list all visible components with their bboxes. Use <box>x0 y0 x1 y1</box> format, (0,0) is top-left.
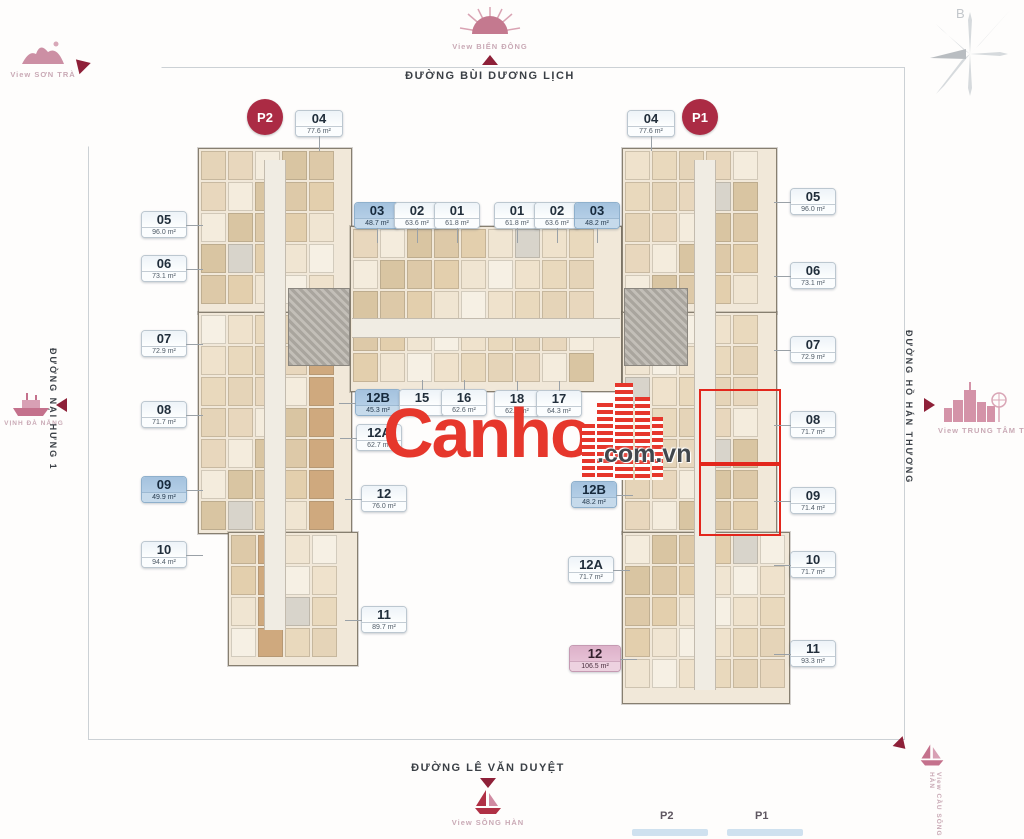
leader-line <box>616 495 633 496</box>
room-cell <box>228 439 253 468</box>
room-cell <box>760 535 785 564</box>
floorplan-page: 0477.6 m²0477.6 m²0348.7 m²0263.6 m²0161… <box>0 0 1024 839</box>
watermark-brand: Canho <box>383 398 591 468</box>
unit-label-12A: 12A71.7 m² <box>568 556 614 583</box>
unit-label-04: 0477.6 m² <box>295 110 343 137</box>
room-cell <box>488 353 513 382</box>
room-cell <box>228 244 253 273</box>
room-cell <box>542 229 567 258</box>
view-river-label: View SÔNG HÀN <box>438 818 538 827</box>
street-left-label: ĐƯỜNG NẠI HƯNG 1 <box>48 348 58 498</box>
unit-number: 08 <box>142 402 186 417</box>
room-cell <box>309 213 334 242</box>
unit-number: 08 <box>791 412 835 427</box>
room-cell <box>569 260 594 289</box>
room-cell <box>353 353 378 382</box>
unit-label-05: 0596.0 m² <box>141 211 187 238</box>
room-cell <box>231 566 256 595</box>
leader-line <box>422 380 423 390</box>
room-cell <box>542 260 567 289</box>
room-cell <box>309 439 334 468</box>
unit-number: 06 <box>791 263 835 278</box>
room-cell <box>309 151 334 180</box>
room-cell <box>201 377 226 406</box>
unit-area: 71.7 m² <box>791 427 835 437</box>
room-cell <box>733 244 758 273</box>
room-cell <box>461 260 486 289</box>
unit-label-06: 0673.1 m² <box>790 262 836 289</box>
room-cell <box>201 408 226 437</box>
room-cell <box>733 182 758 211</box>
unit-label-04: 0477.6 m² <box>627 110 675 137</box>
building-bar <box>582 424 595 480</box>
unit-label-08: 0871.7 m² <box>141 401 187 428</box>
room-cell <box>201 244 226 273</box>
room-cell <box>228 346 253 375</box>
unit-area: 72.9 m² <box>791 352 835 362</box>
unit-area: 77.6 m² <box>296 126 342 136</box>
room-cell <box>733 659 758 688</box>
room-cell <box>228 151 253 180</box>
room-cell <box>760 566 785 595</box>
unit-number: 02 <box>395 203 439 218</box>
unit-number: 05 <box>791 189 835 204</box>
leader-line <box>774 350 791 351</box>
room-cell <box>760 659 785 688</box>
unit-label-10: 1071.7 m² <box>790 551 836 578</box>
corridor-top-bar <box>352 318 620 338</box>
leader-line <box>774 425 791 426</box>
room-cell <box>434 291 459 320</box>
room-cell <box>733 535 758 564</box>
room-cell <box>228 275 253 304</box>
legend-p1-label: P1 <box>755 810 768 822</box>
room-cell <box>461 353 486 382</box>
leader-line <box>559 381 560 391</box>
unit-area: 61.8 m² <box>495 218 539 228</box>
elevator-core-right <box>624 288 688 366</box>
room-cell <box>652 501 677 530</box>
room-cell <box>652 213 677 242</box>
leader-line <box>186 415 203 416</box>
room-cell <box>285 597 310 626</box>
room-cell <box>201 275 226 304</box>
leader-line <box>345 620 362 621</box>
unit-label-12B: 12B48.2 m² <box>571 481 617 508</box>
unit-area: 76.0 m² <box>362 501 406 511</box>
room-cell <box>733 566 758 595</box>
leader-line <box>774 565 791 566</box>
leader-line <box>339 403 356 404</box>
room-cell <box>515 291 540 320</box>
street-right-label: ĐƯỜNG HỒ HÁN THƯƠNG <box>904 330 914 490</box>
unit-number: 01 <box>435 203 479 218</box>
elevator-core-left <box>288 288 350 366</box>
leader-line <box>417 228 418 243</box>
room-cell <box>228 408 253 437</box>
room-cell <box>228 213 253 242</box>
room-cell <box>733 151 758 180</box>
direction-triangle-down-icon <box>480 778 496 788</box>
room-cell <box>407 260 432 289</box>
leader-line <box>345 499 362 500</box>
legend-p2-bar <box>632 829 708 836</box>
leader-line <box>319 136 320 151</box>
leader-line <box>457 228 458 243</box>
watermark-suffix: .com.vn <box>597 440 691 469</box>
view-bridge-label: View CẦU SÔNG HÀN <box>928 772 942 839</box>
room-cell <box>309 470 334 499</box>
room-cell <box>461 229 486 258</box>
room-cell <box>228 470 253 499</box>
room-cell <box>625 535 650 564</box>
room-cell <box>407 291 432 320</box>
room-cell <box>201 470 226 499</box>
direction-triangle-right-icon <box>924 398 935 412</box>
unit-label-07: 0772.9 m² <box>790 336 836 363</box>
unit-number: 11 <box>362 607 406 622</box>
unit-area: 72.9 m² <box>142 346 186 356</box>
room-cell <box>652 628 677 657</box>
marker-p1: P1 <box>682 99 718 135</box>
leader-line <box>774 202 791 203</box>
room-cell <box>312 628 337 657</box>
left-wing-bottom <box>228 532 358 666</box>
room-cell <box>733 275 758 304</box>
leader-line <box>620 659 637 660</box>
unit-number: 03 <box>355 203 399 218</box>
room-cell <box>652 244 677 273</box>
unit-label-09: 0949.9 m² <box>141 476 187 503</box>
highlight-box-unit-08 <box>699 389 781 466</box>
unit-number: 07 <box>142 331 186 346</box>
unit-label-06: 0673.1 m² <box>141 255 187 282</box>
leader-line <box>464 380 465 390</box>
view-city-label: View TRUNG TÂM THÀNH PHỐ <box>938 426 1024 435</box>
unit-number: 10 <box>142 542 186 557</box>
room-cell <box>434 353 459 382</box>
unit-area: 71.7 m² <box>791 567 835 577</box>
room-cell <box>309 377 334 406</box>
marker-p2-label: P2 <box>257 110 273 125</box>
view-sea-label: View BIỂN ĐÔNG <box>440 42 540 51</box>
room-cell <box>733 315 758 344</box>
room-cell <box>760 597 785 626</box>
street-top-label: ĐƯỜNG BÙI DƯƠNG LỊCH <box>380 70 600 82</box>
ship-icon <box>10 390 52 418</box>
unit-label-10: 1094.4 m² <box>141 541 187 568</box>
room-cell <box>201 439 226 468</box>
unit-area: 48.2 m² <box>575 218 619 228</box>
room-cell <box>733 346 758 375</box>
view-son-tra-label: View SƠN TRÀ <box>6 70 80 79</box>
highlight-box-unit-09 <box>699 462 781 536</box>
top-bar <box>350 226 622 392</box>
room-cell <box>312 566 337 595</box>
unit-area: 48.7 m² <box>355 218 399 228</box>
unit-area: 73.1 m² <box>142 271 186 281</box>
leader-line <box>186 269 203 270</box>
leader-line <box>774 654 791 655</box>
unit-number: 11 <box>791 641 835 656</box>
room-cell <box>515 229 540 258</box>
unit-number: 10 <box>791 552 835 567</box>
unit-number: 09 <box>142 477 186 492</box>
unit-area: 73.1 m² <box>791 278 835 288</box>
leader-line <box>517 228 518 243</box>
unit-area: 77.6 m² <box>628 126 674 136</box>
room-cell <box>625 244 650 273</box>
direction-triangle-up-icon <box>482 55 498 65</box>
unit-area: 93.3 m² <box>791 656 835 666</box>
unit-area: 71.4 m² <box>791 503 835 513</box>
room-cell <box>652 151 677 180</box>
unit-number: 04 <box>628 111 674 126</box>
room-cell <box>625 151 650 180</box>
room-cell <box>353 229 378 258</box>
leader-line <box>557 228 558 243</box>
room-cell <box>407 229 432 258</box>
room-cell <box>309 408 334 437</box>
unit-area: 49.9 m² <box>142 492 186 502</box>
room-cell <box>201 213 226 242</box>
unit-area: 106.5 m² <box>570 661 620 671</box>
leader-line <box>377 228 378 243</box>
street-bottom-label: ĐƯỜNG LÊ VĂN DUYỆT <box>378 762 598 774</box>
unit-number: 01 <box>495 203 539 218</box>
leader-line <box>774 501 791 502</box>
room-cell <box>380 291 405 320</box>
unit-area: 94.4 m² <box>142 557 186 567</box>
room-cell <box>231 597 256 626</box>
room-cell <box>353 291 378 320</box>
unit-number: 09 <box>791 488 835 503</box>
unit-area: 96.0 m² <box>142 227 186 237</box>
room-cell <box>353 260 378 289</box>
room-cell <box>201 501 226 530</box>
room-cell <box>380 229 405 258</box>
leader-line <box>613 570 630 571</box>
room-cell <box>733 597 758 626</box>
leader-line <box>186 490 203 491</box>
room-cell <box>285 628 310 657</box>
unit-label-12: 12106.5 m² <box>569 645 621 672</box>
room-cell <box>434 260 459 289</box>
unit-number: 03 <box>575 203 619 218</box>
room-cell <box>488 229 513 258</box>
room-cell <box>231 628 256 657</box>
room-cell <box>652 659 677 688</box>
unit-label-12: 1276.0 m² <box>361 485 407 512</box>
unit-label-01: 0161.8 m² <box>434 202 480 229</box>
room-cell <box>625 501 650 530</box>
leader-line <box>186 344 203 345</box>
unit-label-03: 0348.2 m² <box>574 202 620 229</box>
room-cell <box>201 315 226 344</box>
room-cell <box>569 229 594 258</box>
unit-label-08: 0871.7 m² <box>790 411 836 438</box>
marker-p2: P2 <box>247 99 283 135</box>
unit-number: 02 <box>535 203 579 218</box>
room-cell <box>285 535 310 564</box>
compass-north-label: B <box>956 6 965 21</box>
room-cell <box>228 377 253 406</box>
room-cell <box>228 182 253 211</box>
room-cell <box>515 353 540 382</box>
room-cell <box>488 291 513 320</box>
room-cell <box>312 535 337 564</box>
sun-icon <box>458 6 522 36</box>
room-cell <box>201 182 226 211</box>
room-cell <box>625 628 650 657</box>
leader-line <box>517 381 518 391</box>
unit-number: 12B <box>572 482 616 497</box>
unit-number: 05 <box>142 212 186 227</box>
room-cell <box>309 244 334 273</box>
room-cell <box>625 182 650 211</box>
room-cell <box>652 535 677 564</box>
room-cell <box>380 260 405 289</box>
room-cell <box>285 566 310 595</box>
room-cell <box>407 353 432 382</box>
room-cell <box>201 151 226 180</box>
room-cell <box>228 501 253 530</box>
leader-line <box>774 276 791 277</box>
unit-label-11: 1193.3 m² <box>790 640 836 667</box>
room-cell <box>434 229 459 258</box>
unit-area: 63.6 m² <box>395 218 439 228</box>
unit-number: 06 <box>142 256 186 271</box>
room-cell <box>461 291 486 320</box>
room-cell <box>201 346 226 375</box>
leader-line <box>186 555 203 556</box>
room-cell <box>231 535 256 564</box>
room-cell <box>258 628 283 657</box>
unit-area: 61.8 m² <box>435 218 479 228</box>
unit-number: 12A <box>569 557 613 572</box>
room-cell <box>652 566 677 595</box>
leader-line <box>186 225 203 226</box>
room-cell <box>652 182 677 211</box>
unit-label-07: 0772.9 m² <box>141 330 187 357</box>
room-cell <box>733 628 758 657</box>
unit-area: 48.2 m² <box>572 497 616 507</box>
leader-line <box>651 136 652 151</box>
leader-line <box>597 228 598 243</box>
room-cell <box>515 260 540 289</box>
unit-area: 71.7 m² <box>569 572 613 582</box>
corridor-left <box>264 160 286 630</box>
room-cell <box>652 597 677 626</box>
sailboat-small-icon <box>918 742 946 768</box>
room-cell <box>569 291 594 320</box>
room-cell <box>625 659 650 688</box>
room-cell <box>488 260 513 289</box>
leader-line <box>340 438 357 439</box>
unit-label-05: 0596.0 m² <box>790 188 836 215</box>
unit-label-09: 0971.4 m² <box>790 487 836 514</box>
unit-number: 12 <box>570 646 620 661</box>
room-cell <box>733 213 758 242</box>
unit-area: 89.7 m² <box>362 622 406 632</box>
room-cell <box>625 597 650 626</box>
unit-number: 07 <box>791 337 835 352</box>
unit-number: 04 <box>296 111 342 126</box>
legend-p1-bar <box>727 829 803 836</box>
room-cell <box>380 353 405 382</box>
legend-p2-label: P2 <box>660 810 673 822</box>
compass-icon: B <box>912 2 1018 100</box>
room-cell <box>542 291 567 320</box>
room-cell <box>312 597 337 626</box>
city-skyline-icon <box>942 380 1008 424</box>
room-cell <box>625 213 650 242</box>
unit-area: 96.0 m² <box>791 204 835 214</box>
room-cell <box>309 182 334 211</box>
mountain-icon <box>20 38 66 66</box>
room-cell <box>542 353 567 382</box>
unit-label-11: 1189.7 m² <box>361 606 407 633</box>
marker-p1-label: P1 <box>692 110 708 125</box>
unit-area: 63.6 m² <box>535 218 579 228</box>
sailboat-icon <box>472 788 504 816</box>
unit-number: 12 <box>362 486 406 501</box>
unit-area: 71.7 m² <box>142 417 186 427</box>
room-cell <box>569 353 594 382</box>
room-cell <box>309 501 334 530</box>
room-cell <box>228 315 253 344</box>
